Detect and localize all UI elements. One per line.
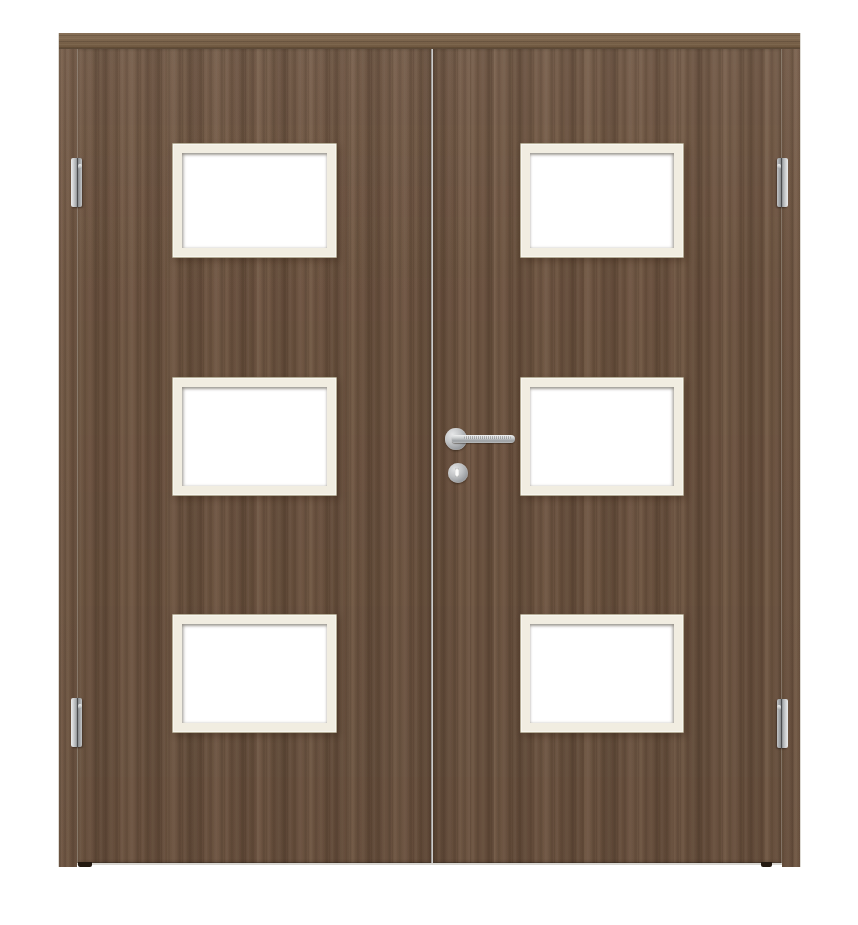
glazing-panel-right-bottom bbox=[520, 614, 684, 733]
hinge-icon-top-right bbox=[777, 158, 788, 207]
hinge-icon-bottom-left bbox=[71, 698, 82, 747]
meeting-stile-seam bbox=[431, 49, 433, 863]
glass-pane bbox=[182, 153, 327, 248]
glass-pane bbox=[182, 624, 327, 723]
double-door bbox=[59, 33, 800, 867]
glass-pane bbox=[530, 153, 674, 248]
hinge-icon-top-left bbox=[71, 158, 82, 207]
glazing-panel-right-middle bbox=[520, 377, 684, 496]
threshold-shadow bbox=[77, 863, 782, 865]
keyhole-icon bbox=[455, 468, 459, 477]
frame-head-rail bbox=[59, 33, 800, 49]
product-image-canvas bbox=[0, 0, 858, 925]
glazing-panel-right-top bbox=[520, 143, 684, 258]
hinge-icon-bottom-right bbox=[777, 699, 788, 748]
bottom-gap-shadow-left bbox=[78, 862, 92, 867]
glass-pane bbox=[530, 624, 674, 723]
glass-pane bbox=[530, 387, 674, 486]
bottom-gap-shadow-right bbox=[761, 862, 772, 867]
glazing-panel-left-bottom bbox=[172, 614, 337, 733]
glazing-panel-left-top bbox=[172, 143, 337, 258]
glazing-panel-left-middle bbox=[172, 377, 337, 496]
lever-handle-icon bbox=[452, 435, 515, 443]
escutcheon bbox=[448, 463, 468, 483]
glass-pane bbox=[182, 387, 327, 486]
